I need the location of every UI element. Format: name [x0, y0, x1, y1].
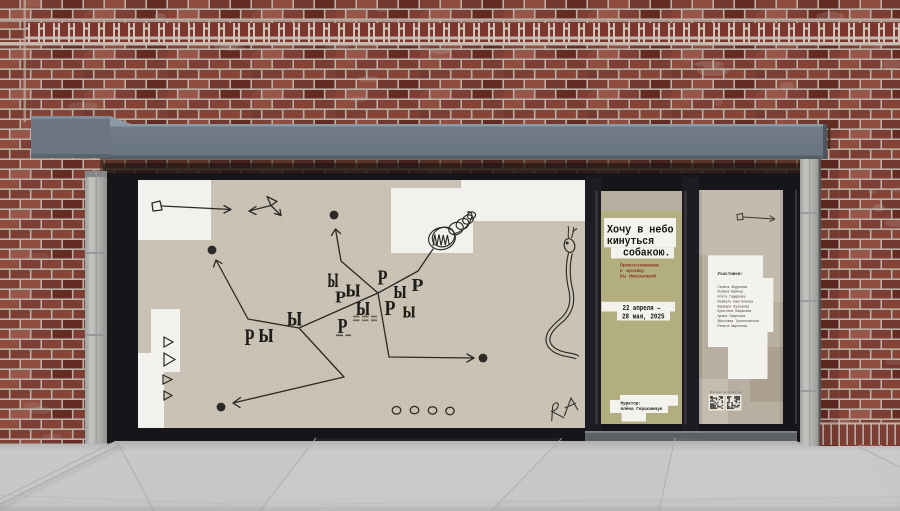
- svg-text:22 апреля —: 22 апреля —: [623, 305, 662, 313]
- svg-text:Р: Р: [335, 288, 346, 307]
- svg-text:Ры Никоновой: Ры Никоновой: [620, 272, 656, 279]
- svg-text:Галина Андреева: Галина Андреева: [718, 285, 748, 289]
- svg-text:Прикосновение: Прикосновение: [620, 262, 659, 268]
- svg-text:Хочу в небо: Хочу в небо: [607, 224, 674, 237]
- svg-text:ы: ы: [403, 298, 416, 324]
- svg-text:Алёна Герасимчук: Алёна Герасимчук: [621, 406, 663, 412]
- svg-text:28 мая, 2025: 28 мая, 2025: [622, 314, 665, 322]
- svg-text:Рената Шарипова: Рената Шарипова: [718, 324, 748, 328]
- svg-text:Варвара Кулешова: Варвара Кулешова: [718, 304, 750, 308]
- svg-text:Изабель Кангалеева: Изабель Кангалеева: [718, 299, 754, 303]
- svg-text:Каталог вы: Каталог вы: [727, 391, 742, 394]
- svg-text:кинуться: кинуться: [607, 236, 654, 248]
- svg-text:Куратор:: Куратор:: [621, 401, 642, 407]
- svg-text:Р: Р: [385, 296, 396, 320]
- svg-text:Р: Р: [338, 314, 348, 338]
- svg-text:Ярослава Троянковская: Ярослава Троянковская: [718, 319, 760, 323]
- svg-text:ы: ы: [259, 318, 274, 349]
- svg-text:Арина Смирнова: Арина Смирнова: [718, 314, 746, 318]
- svg-text:Полина Вайнер: Полина Вайнер: [718, 290, 744, 294]
- svg-text:Участники:: Участники:: [718, 272, 744, 277]
- svg-text:Р: Р: [412, 275, 424, 295]
- svg-text:Р: Р: [245, 325, 255, 351]
- svg-text:собакою.: собакою.: [623, 247, 671, 260]
- svg-text:к архиву: к архиву: [620, 269, 644, 274]
- svg-text:ы: ы: [287, 299, 302, 332]
- svg-text:Описание пр: Описание пр: [710, 391, 726, 394]
- svg-text:Агата Гафарова: Агата Гафарова: [718, 295, 746, 299]
- svg-text:Кристина Пацюкова: Кристина Пацюкова: [718, 309, 752, 313]
- svg-text:Р: Р: [378, 266, 388, 290]
